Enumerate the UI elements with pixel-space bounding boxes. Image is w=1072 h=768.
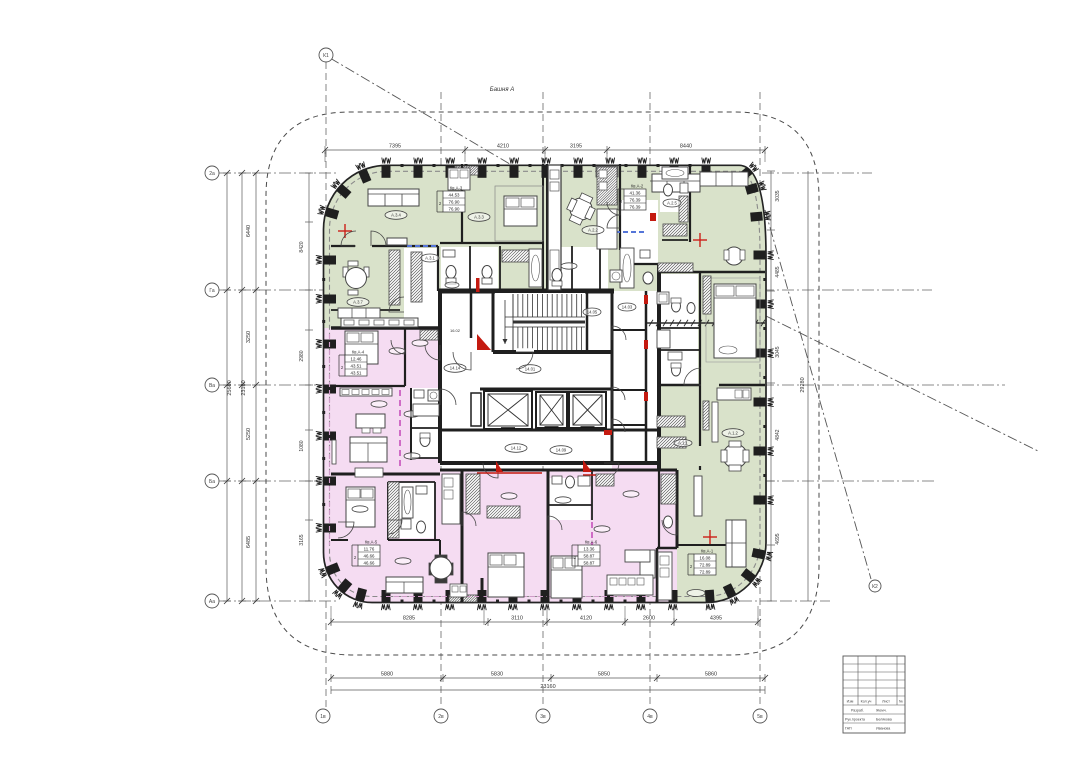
svg-text:8420: 8420 <box>299 241 305 252</box>
svg-text:Кол.уч: Кол.уч <box>861 700 872 704</box>
svg-text:76.39: 76.39 <box>630 197 642 202</box>
svg-text:4120: 4120 <box>580 616 592 622</box>
svg-text:23160: 23160 <box>241 380 247 395</box>
svg-text:5830: 5830 <box>491 672 503 678</box>
svg-text:Иванова: Иванова <box>876 727 890 731</box>
svg-text:14.05: 14.05 <box>587 310 598 315</box>
svg-text:14.12: 14.12 <box>511 446 522 451</box>
svg-text:25660: 25660 <box>227 380 233 395</box>
svg-text:6485: 6485 <box>246 536 252 548</box>
svg-text:46.66: 46.66 <box>364 560 376 565</box>
svg-text:14.14: 14.14 <box>450 366 461 371</box>
svg-text:72.89: 72.89 <box>700 562 712 567</box>
svg-text:29280: 29280 <box>800 377 806 392</box>
svg-text:4в: 4в <box>647 714 653 720</box>
svg-text:А.3.4: А.3.4 <box>391 213 401 218</box>
svg-text:5880: 5880 <box>381 672 393 678</box>
svg-text:3035: 3035 <box>775 190 781 201</box>
svg-text:№: № <box>899 700 903 704</box>
svg-text:4842: 4842 <box>775 429 781 440</box>
svg-text:Кв.А-6: Кв.А-6 <box>585 540 598 545</box>
svg-text:А.3.1: А.3.1 <box>425 256 435 261</box>
svg-text:5в: 5в <box>757 714 763 720</box>
svg-text:А.1.1: А.1.1 <box>678 441 688 446</box>
svg-text:2а: 2а <box>209 171 215 177</box>
svg-text:Белякова: Белякова <box>876 718 892 722</box>
svg-text:23160: 23160 <box>540 684 555 690</box>
svg-text:46.66: 46.66 <box>364 553 376 558</box>
svg-text:К2: К2 <box>872 584 878 590</box>
svg-text:1080: 1080 <box>299 440 305 451</box>
svg-text:11.76: 11.76 <box>364 546 375 551</box>
svg-text:41.36: 41.36 <box>630 190 642 195</box>
svg-text:2в: 2в <box>438 714 444 720</box>
svg-text:16.08: 16.08 <box>700 555 712 560</box>
svg-text:Кв.А-1: Кв.А-1 <box>701 549 714 554</box>
svg-text:Га: Га <box>209 288 214 294</box>
svg-text:4695: 4695 <box>775 533 781 544</box>
svg-text:А.3.3: А.3.3 <box>474 215 484 220</box>
svg-text:76.90: 76.90 <box>449 199 461 204</box>
svg-text:76.90: 76.90 <box>449 206 461 211</box>
svg-text:Кв.А-2: Кв.А-2 <box>631 184 644 189</box>
svg-text:5860: 5860 <box>705 672 717 678</box>
svg-text:Лист: Лист <box>882 700 890 704</box>
svg-text:4395: 4395 <box>710 616 722 622</box>
svg-text:5850: 5850 <box>598 672 610 678</box>
svg-text:А.3.7: А.3.7 <box>353 300 363 305</box>
svg-text:44.53: 44.53 <box>449 192 461 197</box>
svg-text:Кв.А-4: Кв.А-4 <box>352 350 365 355</box>
svg-text:3165: 3165 <box>299 534 305 545</box>
svg-text:3110: 3110 <box>511 616 523 622</box>
svg-text:Разраб.: Разраб. <box>851 709 864 713</box>
svg-text:Башня А: Башня А <box>490 87 514 93</box>
svg-text:43.51: 43.51 <box>351 363 363 368</box>
svg-text:Изм: Изм <box>847 700 854 704</box>
svg-text:Кв.А-5: Кв.А-5 <box>365 540 378 545</box>
svg-text:2600: 2600 <box>643 616 655 622</box>
svg-text:2980: 2980 <box>299 350 305 361</box>
svg-text:8285: 8285 <box>403 616 415 622</box>
svg-text:3250: 3250 <box>246 331 252 343</box>
svg-text:1в: 1в <box>320 714 326 720</box>
svg-text:А.2.2: А.2.2 <box>588 228 598 233</box>
svg-text:Жемч.: Жемч. <box>876 709 887 713</box>
svg-text:Аа: Аа <box>209 599 215 605</box>
svg-text:3195: 3195 <box>570 144 582 150</box>
svg-text:6440: 6440 <box>246 225 252 237</box>
svg-text:14.03: 14.03 <box>622 305 633 310</box>
svg-text:Кв.А-3: Кв.А-3 <box>450 186 463 191</box>
svg-text:Ба: Ба <box>209 479 215 485</box>
svg-text:А.2.5: А.2.5 <box>667 201 677 206</box>
svg-text:ГАП: ГАП <box>845 727 852 731</box>
svg-text:4210: 4210 <box>497 144 509 150</box>
svg-text:Рук.проекта: Рук.проекта <box>845 718 865 722</box>
svg-text:Ва: Ва <box>209 383 215 389</box>
svg-text:4485: 4485 <box>775 266 781 277</box>
svg-text:76.39: 76.39 <box>630 204 642 209</box>
svg-text:3в: 3в <box>540 714 546 720</box>
svg-text:13.36: 13.36 <box>584 546 596 551</box>
svg-text:72.89: 72.89 <box>700 569 712 574</box>
svg-text:5250: 5250 <box>246 428 252 440</box>
svg-text:А.1.2: А.1.2 <box>728 431 738 436</box>
svg-text:58.87: 58.87 <box>584 560 596 565</box>
svg-text:К1: К1 <box>323 53 329 59</box>
svg-text:8440: 8440 <box>680 144 692 150</box>
svg-text:58.87: 58.87 <box>584 553 596 558</box>
svg-text:14.09: 14.09 <box>556 448 567 453</box>
svg-text:43.51: 43.51 <box>351 370 363 375</box>
svg-text:14.01: 14.01 <box>525 367 536 372</box>
svg-text:3045: 3045 <box>775 346 781 357</box>
svg-text:12.46: 12.46 <box>351 356 363 361</box>
svg-text:16.02: 16.02 <box>450 328 461 333</box>
svg-text:7395: 7395 <box>389 144 401 150</box>
